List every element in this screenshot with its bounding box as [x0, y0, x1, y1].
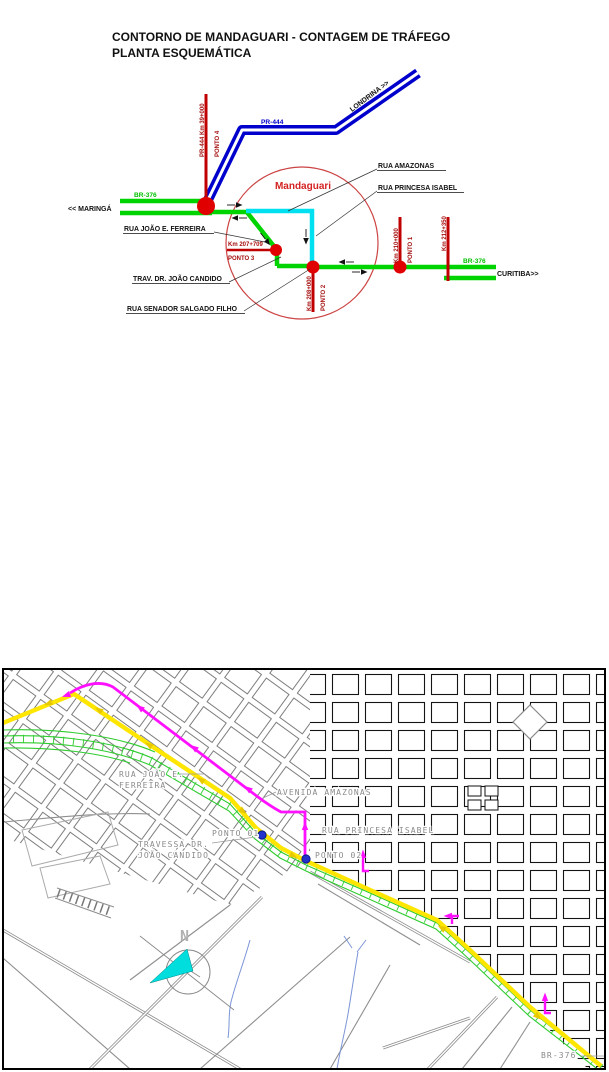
map-label-rua-princesa: RUA PRINCESA ISABEL — [322, 826, 434, 835]
label-p4-km: PR-444 Km 39+000 — [200, 103, 206, 157]
label-p2-name: PONTO 2 — [321, 284, 327, 311]
label-rua-senador-salgado: RUA SENADOR SALGADO FILHO — [127, 306, 238, 313]
label-p4-name: PONTO 4 — [215, 130, 221, 157]
traffic-count-plan-sheet: CONTORNO DE MANDAGUARI - CONTAGEM DE TRÁ… — [0, 0, 609, 1072]
sheet-subtitle: PLANTA ESQUEMÁTICA — [112, 45, 252, 60]
label-p1-km: Km 210+000 — [394, 227, 400, 263]
label-br376-west: BR-376 — [134, 192, 157, 199]
city-map: N RUA JOÃO E. FERREIRA AVENIDA AMAZONAS … — [3, 669, 605, 1071]
br376-west-road — [120, 201, 248, 213]
label-br376-east: BR-376 — [463, 258, 486, 265]
label-rua-princesa-isabel: RUA PRINCESA ISABEL — [378, 185, 457, 192]
label-rua-joao-ferreira: RUA JOÃO E. FERREIRA — [124, 224, 206, 233]
label-p3-km: Km 207+709 — [228, 242, 264, 248]
point-3-dot — [270, 244, 282, 256]
map-point-02-dot — [302, 855, 310, 863]
map-label-ponto-01: PONTO 01 — [212, 829, 259, 838]
label-pr444: PR-444 — [261, 119, 284, 126]
map-label-travessa-1: TRAVESSA DR. — [138, 840, 209, 849]
label-p1-name: PONTO 1 — [408, 236, 414, 263]
label-maringa: << MARINGÁ — [68, 204, 112, 213]
map-label-ponto-02: PONTO 02 — [315, 851, 362, 860]
north-label: N — [180, 927, 189, 945]
map-label-rua-joao-2: FERREIRA — [119, 781, 166, 790]
label-km-212: Km 212+350 — [442, 215, 448, 251]
map-label-rua-joao-1: RUA JOÃO E. — [119, 769, 184, 779]
label-rua-amazonas: RUA AMAZONAS — [378, 163, 435, 170]
map-label-avenida-amazonas: AVENIDA AMAZONAS — [277, 788, 372, 797]
label-trav-joao-candido: TRAV. DR. JOÃO CANDIDO — [133, 274, 222, 283]
schematic-plan: CONTORNO DE MANDAGUARI - CONTAGEM DE TRÁ… — [68, 29, 539, 319]
label-p2-km: Km 208+000 — [307, 275, 313, 311]
label-city-mandaguari: Mandaguari — [275, 181, 331, 192]
label-curitiba: CURITIBA>> — [497, 271, 539, 278]
map-label-travessa-2: JOÃO CANDIDO — [138, 850, 209, 860]
sheet-title: CONTORNO DE MANDAGUARI - CONTAGEM DE TRÁ… — [112, 29, 450, 44]
map-label-br376: BR-376 — [541, 1051, 577, 1060]
label-p3-name: PONTO 3 — [228, 256, 255, 262]
point-2-dot — [307, 261, 320, 274]
junction-point-4-dot — [197, 197, 215, 215]
